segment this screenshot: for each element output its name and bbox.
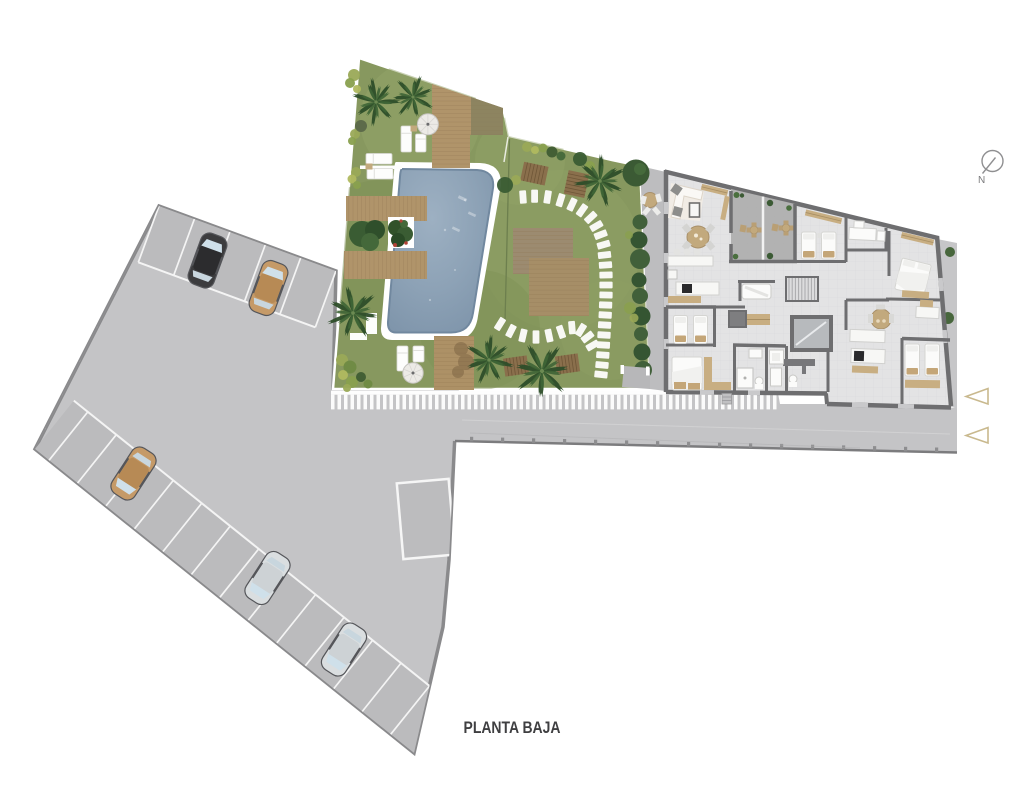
svg-text:N: N <box>978 175 985 186</box>
svg-text:PLANTA BAJA: PLANTA BAJA <box>464 719 561 737</box>
